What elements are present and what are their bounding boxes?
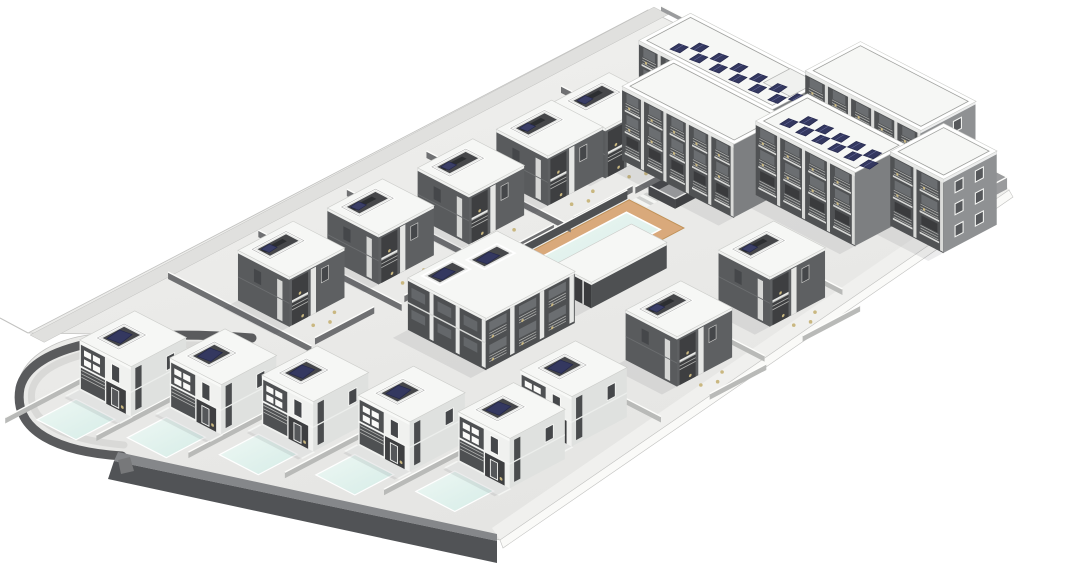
patio-furniture	[311, 323, 315, 327]
patio-furniture	[587, 199, 591, 203]
bim-3d-render	[0, 0, 1079, 576]
apartment-end-block	[890, 123, 997, 253]
patio-furniture	[333, 310, 337, 314]
patio-furniture	[809, 320, 813, 324]
patio-furniture	[591, 189, 595, 193]
patio-furniture	[570, 202, 574, 206]
patio-furniture	[720, 370, 724, 374]
patio-furniture	[512, 228, 516, 232]
rendered-scene-svg	[0, 0, 1079, 576]
patio-furniture	[813, 310, 817, 314]
patio-furniture	[401, 281, 405, 285]
patio-furniture	[699, 383, 703, 387]
patio-furniture	[328, 320, 332, 324]
patio-furniture	[792, 323, 796, 327]
patio-furniture	[716, 380, 720, 384]
